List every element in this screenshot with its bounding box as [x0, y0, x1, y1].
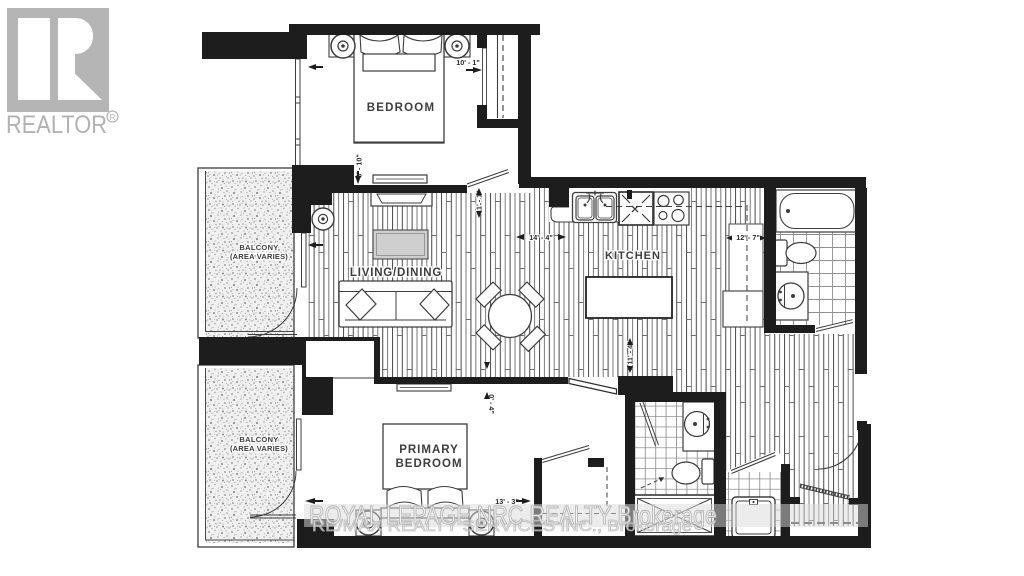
svg-text:BALCONY: BALCONY	[239, 435, 278, 444]
svg-text:ROYAL LEPAGE NRC REALTY Broker: ROYAL LEPAGE NRC REALTY Brokerage	[309, 500, 717, 530]
svg-text:(AREA VARIES): (AREA VARIES)	[230, 252, 288, 261]
svg-text:BEDROOM: BEDROOM	[395, 458, 462, 470]
svg-text:REALTOR: REALTOR	[6, 111, 107, 139]
svg-text:BEDROOM: BEDROOM	[367, 102, 435, 114]
svg-text:10' - 1": 10' - 1"	[456, 58, 480, 67]
svg-text:14' - 4": 14' - 4"	[529, 233, 553, 242]
svg-text:12' - 7": 12' - 7"	[736, 233, 760, 242]
svg-text:(AREA VARIES): (AREA VARIES)	[230, 444, 288, 453]
svg-text:PRIMARY: PRIMARY	[399, 444, 459, 456]
svg-text:LIVING/DINING: LIVING/DINING	[350, 267, 442, 279]
svg-text:BALCONY: BALCONY	[239, 243, 278, 252]
svg-text:KITCHEN: KITCHEN	[605, 250, 661, 262]
svg-text:R: R	[110, 113, 116, 122]
